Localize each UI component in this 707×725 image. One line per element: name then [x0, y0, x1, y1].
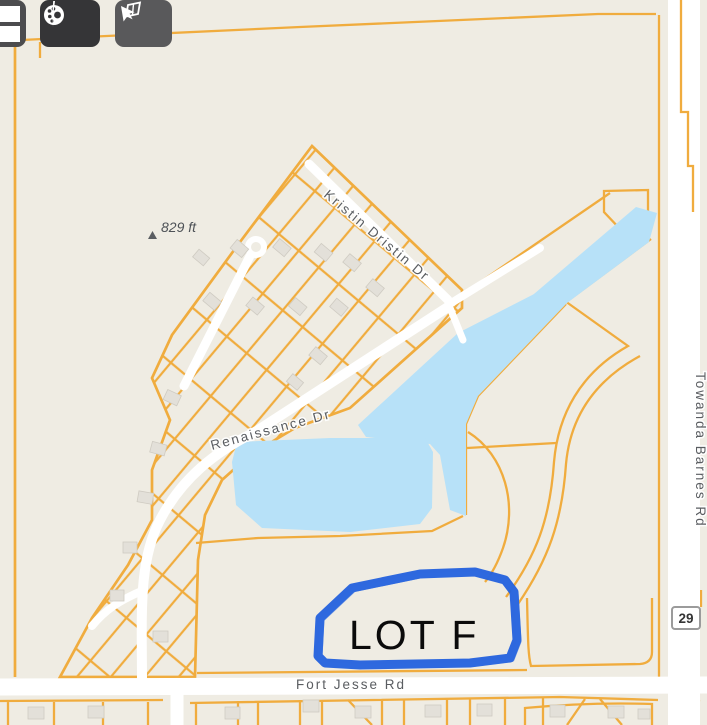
lot-f-label: LOT F: [349, 612, 479, 658]
layers-button[interactable]: [0, 0, 26, 47]
map-view: 829 ft Kristin Dristin Dr Renaissance Dr…: [0, 0, 707, 725]
elevation-label: 829 ft: [161, 219, 197, 235]
street-label-towanda: Towanda Barnes Rd: [693, 372, 707, 528]
map-canvas[interactable]: 829 ft Kristin Dristin Dr Renaissance Dr…: [0, 0, 707, 725]
pond-west: [232, 438, 433, 532]
route-shield-29: 29: [672, 607, 700, 629]
street-label-fort-jesse: Fort Jesse Rd: [296, 677, 406, 692]
select-features-button[interactable]: [115, 0, 172, 47]
draw-style-button[interactable]: [40, 0, 100, 47]
route-shield-number: 29: [678, 611, 693, 626]
